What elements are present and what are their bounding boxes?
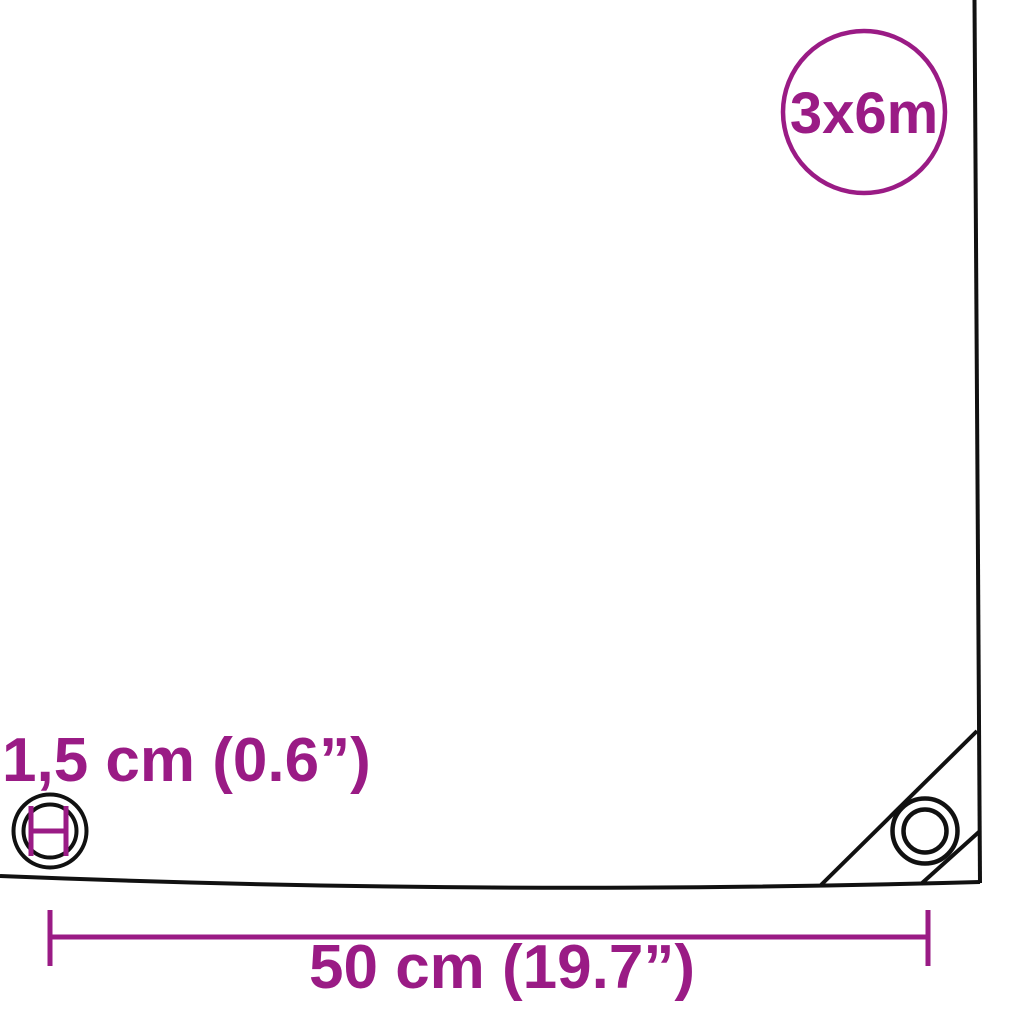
size-badge: 3x6m — [783, 31, 945, 193]
eyelet-spacing-label: 50 cm (19.7”) — [309, 933, 695, 1002]
corner-eyelet-inner-ring — [904, 810, 947, 853]
tarpaulin-size-diagram: 1,5 cm (0.6”) 50 cm (19.7”) 3x6m — [0, 0, 1024, 1024]
eyelet-diameter-icon — [14, 795, 87, 868]
tarp-right-edge — [975, 0, 981, 883]
diagram-canvas: 1,5 cm (0.6”) 50 cm (19.7”) 3x6m — [0, 0, 1024, 1024]
eyelet-diameter-label: 1,5 cm (0.6”) — [2, 726, 371, 795]
tarp-bottom-edge — [0, 876, 980, 888]
diameter-measure-marker — [31, 806, 66, 856]
size-badge-label: 3x6m — [790, 81, 938, 146]
corner-eyelet-icon — [893, 799, 958, 864]
